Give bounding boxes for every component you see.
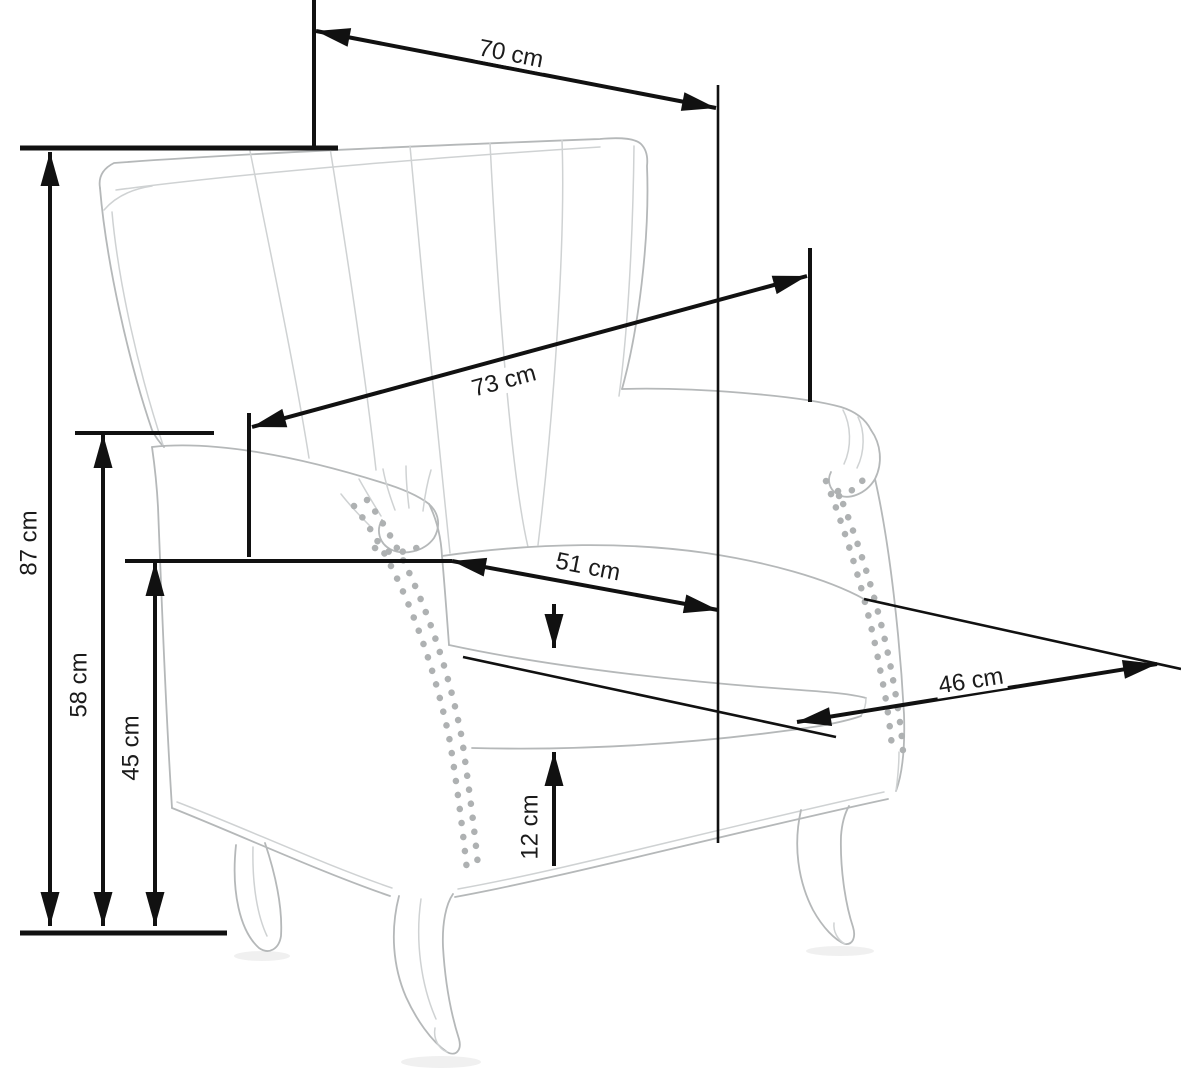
furniture-dimension-diagram: 70 cm 73 cm 51 cm 46 cm 87 cm 58 cm 45 c… <box>0 0 1181 1080</box>
dimension-lines <box>20 0 1181 933</box>
shadow-right-leg <box>806 946 874 956</box>
seat-cushion <box>442 545 866 749</box>
extension-line-46-back <box>864 599 1181 669</box>
dimension-label-total-height: 87 cm <box>16 507 41 578</box>
extension-line-46-front <box>463 657 836 737</box>
armchair-line-drawing <box>100 138 905 1068</box>
backrest <box>100 138 648 447</box>
shadow-back-leg <box>234 951 290 961</box>
shadow-front-leg <box>401 1056 481 1068</box>
dimension-label-arm-height: 58 cm <box>66 649 91 720</box>
dimension-label-cushion-thickness: 12 cm <box>517 791 542 862</box>
left-arm <box>152 445 442 556</box>
dimension-label-seat-height: 45 cm <box>118 712 143 783</box>
arrow-73cm <box>252 276 807 427</box>
legs <box>235 806 855 1054</box>
armchair-diagram-svg <box>0 0 1181 1080</box>
backrest-channel-seams <box>250 140 634 553</box>
